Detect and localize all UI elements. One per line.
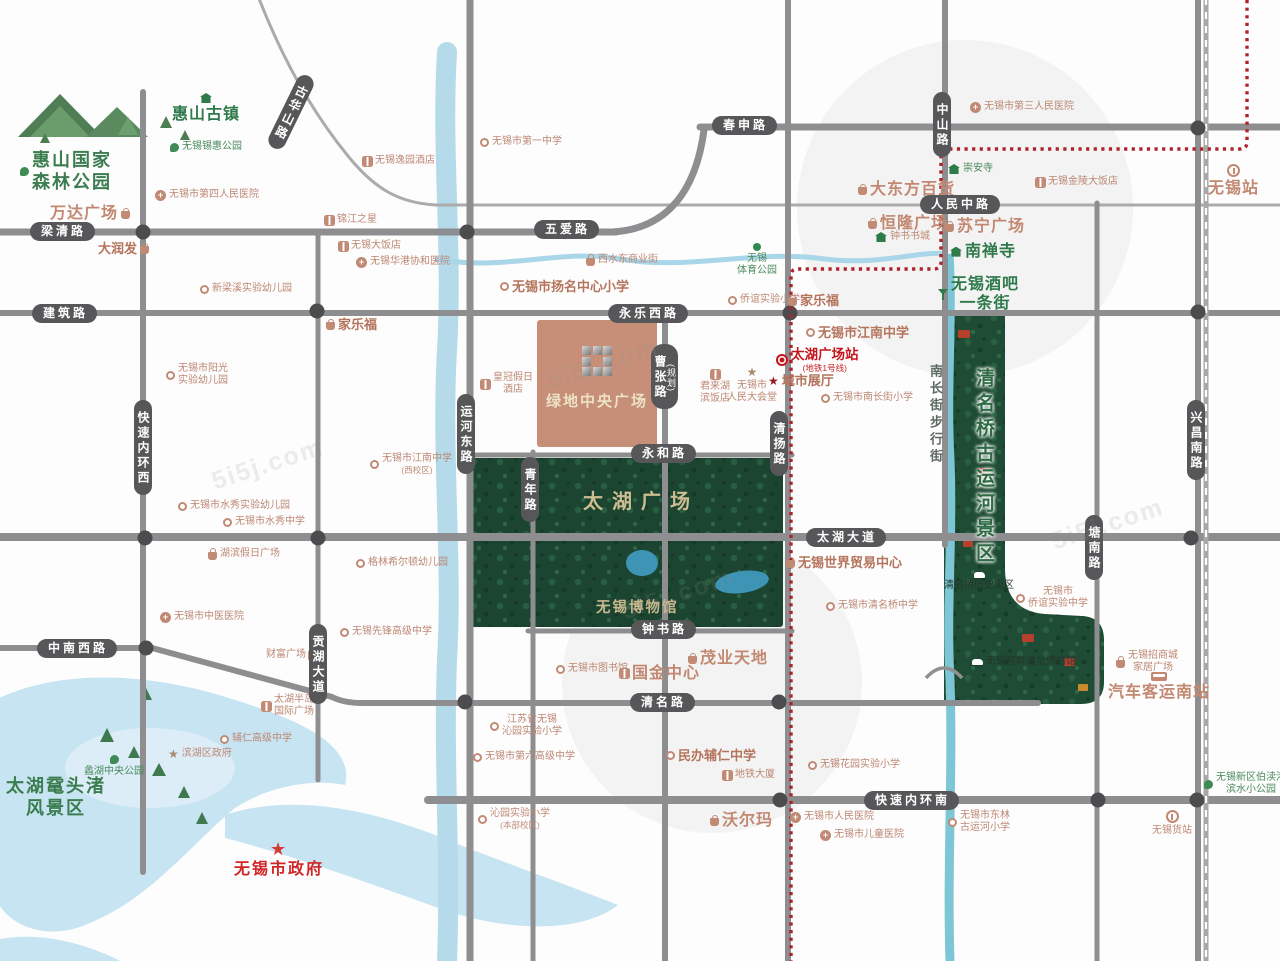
bldg-icon — [262, 702, 271, 711]
bldg-icon — [723, 771, 732, 780]
poi-xihui-park: 无锡锡惠公园 — [170, 141, 242, 153]
bldg-icon — [1036, 178, 1045, 187]
road-pill-qingming-rd: 清名路 — [630, 693, 695, 712]
road-pill-yongle-west-rd: 永乐西路 — [608, 304, 688, 323]
ring-icon — [200, 285, 209, 294]
poi-carrefour-west: 家乐福 — [326, 317, 377, 333]
road-pill-renmin-middle-rd: 人民中路 — [920, 195, 1000, 214]
bag-icon — [121, 211, 130, 219]
label-nanchang-pedestrian-street: 南长街步行街 — [926, 364, 945, 466]
poi-qingmingqiao-historic-block: 清名桥历史街区 — [944, 572, 1014, 592]
ring-icon — [370, 460, 379, 469]
poi-shuixiu-kindergarten: 无锡市水秀实验幼儿园 — [178, 500, 290, 512]
poi-wuxi-freight-station: 无锡货站 — [1152, 810, 1192, 837]
train-icon — [1227, 164, 1240, 177]
poi-yangguang-kindergarten: 无锡市阳光实验幼儿园 — [166, 363, 228, 387]
road-pill-qingyang-rd: 清扬路 — [770, 411, 788, 476]
poi-wuxi-railway-station: 无锡站 — [1208, 164, 1259, 198]
poi-huishan-ancient-town: 惠山古镇 — [172, 93, 240, 124]
ring-icon — [478, 815, 487, 824]
poi-yangming-central-primary: 无锡市扬名中心小学 — [500, 279, 629, 295]
ring-icon — [948, 818, 957, 827]
cross-icon: + — [155, 190, 166, 201]
martini-icon — [938, 289, 948, 300]
poi-crowne-plaza-hotel: 皇冠假日酒店 — [481, 372, 533, 396]
road-pill-liangqing-rd: 梁清路 — [30, 222, 95, 241]
poi-xinliangxi-kindergarten: 新梁溪实验幼儿园 — [200, 283, 292, 295]
cross-icon: + — [970, 102, 981, 113]
bag-icon — [688, 656, 697, 664]
leaf-icon — [170, 143, 179, 152]
leaf-icon — [110, 755, 119, 764]
poi-wuxi-sports-park: 无锡体育公园 — [737, 243, 777, 277]
poi-huishan-for-park: 惠山国家森林公园 — [20, 150, 112, 193]
star-icon: ★ — [747, 366, 758, 378]
bldg-icon — [363, 157, 372, 166]
poi-wuxi-bar-street: 无锡酒吧一条街 — [938, 275, 1019, 313]
temple-icon — [950, 247, 962, 257]
poi-peoples-hospital: +无锡市人民医院 — [790, 811, 874, 823]
poi-junlai-hubin-hotel: 君来湖滨饭店 — [700, 370, 730, 405]
road-pill-chunshen-rd: 春申路 — [712, 116, 777, 135]
bldg-icon — [620, 669, 629, 678]
bldg-icon — [325, 216, 334, 225]
road-pill-qingnian-rd: 青年路 — [521, 457, 539, 522]
poi-south-bus-station: 汽车客运南站 — [1108, 672, 1210, 702]
label-taihu-square: 太湖广场 — [583, 485, 699, 514]
metro-icon — [776, 354, 788, 366]
poi-qinyuan-primary-js: 江苏省无锡沁园实验小学 — [490, 714, 562, 738]
cross-icon: + — [356, 257, 367, 268]
poi-childrens-hospital: +无锡市儿童医院 — [820, 829, 904, 841]
poi-wuxi-city-gov: ★无锡市政府 — [234, 840, 324, 879]
poi-nanchan-temple: 南禅寺 — [950, 242, 1016, 261]
label-wuxi-museum: 无锡博物馆 — [596, 596, 679, 617]
poi-wanda-plaza: 万达广场 — [50, 204, 130, 223]
poi-world-trade-center: 无锡世界贸易中心 — [786, 555, 902, 571]
poi-wuxi-grand-hotel: 无锡大饭店 — [339, 240, 401, 252]
temple-icon — [875, 232, 887, 242]
road-pill-guhuashan-rd: 古华山路 — [265, 72, 316, 152]
poi-no3-peoples-hospital: +无锡市第三人民医院 — [970, 101, 1074, 113]
poi-wuxi-library: 无锡市图书馆 — [556, 663, 628, 675]
poi-no6-high-school: 无锡市第六高级中学 — [473, 751, 575, 763]
poi-ditie-tower: 地铁大厦 — [723, 769, 775, 781]
poi-no1-middle-school: 无锡市第一中学 — [480, 136, 562, 148]
poi-qiaoyi-exp-primary: 侨谊实验小学 — [728, 294, 800, 306]
poi-xishuidong-commercial-street: 西水东商业街 — [586, 254, 658, 266]
temple-icon — [948, 164, 960, 174]
poi-bodugang-waterfront-park: 无锡新区伯渎港滨水小公园 — [1204, 772, 1280, 796]
poi-no4-peoples-hospital: +无锡市第四人民医院 — [155, 189, 259, 201]
road-pill-wuai-rd: 五爱路 — [534, 220, 599, 239]
temple-icon — [200, 93, 212, 103]
road-pill-kuaisu-neihuan-south: 快速内环南 — [864, 791, 959, 810]
road-pill-gonghu-ave: 贡湖大道 — [309, 624, 327, 704]
poi-jiangnan-middle-school: 无锡市江南中学 — [806, 325, 909, 341]
ring-icon — [1016, 594, 1025, 603]
poi-furen-high-school: 辅仁高级中学 — [220, 733, 292, 745]
star-red-icon: ★ — [270, 840, 288, 858]
poi-chongan-temple: 崇安寺 — [948, 163, 993, 175]
road-pill-zhongshan-rd: 中山路 — [933, 92, 951, 157]
poi-huayuan-exp-primary: 无锡花园实验小学 — [808, 759, 900, 771]
cross-icon: + — [160, 612, 171, 623]
road-pill-zhongnan-west-rd: 中南西路 — [37, 639, 117, 658]
road-pill-taihu-ave: 太湖大道 — [806, 528, 886, 547]
bag-icon — [945, 224, 954, 232]
dot-icon — [753, 243, 761, 251]
poi-taihu-square-metro: 太湖广场站(地铁1号线) — [776, 347, 859, 373]
ring-icon — [166, 371, 175, 380]
ring-icon — [473, 753, 482, 762]
poi-walmart: 沃尔玛 — [710, 811, 773, 830]
road-pill-zhongshu-rd: 钟书路 — [631, 620, 696, 639]
bldg-icon — [711, 370, 720, 379]
map-labels-layer: 梁清路建筑路五爱路春申路永乐西路永和路钟书路清名路太湖大道快速内环南中南西路人民… — [0, 0, 1280, 961]
bag-icon — [586, 258, 595, 266]
star-icon: ★ — [168, 748, 179, 760]
poi-jinling-hotel: 无锡金陵大饭店 — [1036, 176, 1118, 188]
poi-qingmingqiao-middle: 无锡市清名桥中学 — [826, 600, 918, 612]
road-pill-yunhe-east-rd: 运河东路 — [457, 394, 475, 474]
poi-suning-plaza: 苏宁广场 — [945, 217, 1025, 236]
bag-icon — [786, 560, 795, 568]
poi-taihu-peninsula-plaza: 太湖半岛国际广场 — [262, 694, 314, 718]
ring-icon — [556, 665, 565, 674]
ring-icon — [223, 518, 232, 527]
bag-icon — [326, 322, 335, 330]
ring-icon — [806, 328, 815, 337]
ring-icon — [480, 138, 489, 147]
poi-jinjiang-inn: 锦江之星 — [325, 214, 377, 226]
poi-jiangnan-middle-west: 无锡市江南中学(西校区) — [370, 453, 452, 475]
poi-shuixiu-middle-school: 无锡市水秀中学 — [223, 516, 305, 528]
bag-icon — [208, 552, 217, 560]
bag-icon — [858, 187, 867, 195]
poi-zhaoshangcheng-home-plaza: 无锡招商城家居广场 — [1116, 650, 1178, 674]
poi-nanchangjie-primary: 无锡市南长街小学 — [821, 392, 913, 404]
road-pill-caozhang-rd: 曹张路(规划) — [651, 344, 678, 409]
poi-peoples-assembly-hall: ★无锡市人民大会堂 — [727, 366, 777, 404]
poi-city-exhibition-hall: ★城市展厅 — [768, 373, 834, 389]
ring-icon — [356, 559, 365, 568]
poi-gelin-kindergarten: 格林希尔顿幼儿园 — [356, 557, 448, 569]
bldg-icon — [481, 380, 490, 389]
cross-icon: + — [820, 830, 831, 841]
bus-icon — [1151, 672, 1167, 681]
poi-yuantouzhu-scenic: 太湖鼋头渚风景区 — [6, 776, 106, 819]
ring-icon — [490, 722, 499, 731]
ring-icon — [220, 735, 229, 744]
road-pill-xingchang-south-rd: 兴昌南路 — [1187, 400, 1205, 480]
poi-lihu-central-park: 蠡湖中央公园 — [84, 755, 144, 778]
poi-qiaoyi-exp-middle: 无锡市侨谊实验中学 — [1016, 586, 1088, 610]
train-icon — [1166, 810, 1179, 823]
poi-hubin-holiday-plaza: 湖滨假日广场 — [208, 548, 280, 560]
ring-icon — [666, 751, 675, 760]
bag-icon — [140, 246, 149, 254]
ring-icon — [808, 761, 817, 770]
bag-icon — [710, 818, 719, 826]
ring-icon — [178, 502, 187, 511]
cross-icon: + — [790, 812, 801, 823]
car-icon — [974, 572, 985, 578]
ring-icon — [500, 282, 509, 291]
poi-tcm-hospital: +无锡市中医医院 — [160, 611, 244, 623]
bag-icon — [1116, 660, 1125, 668]
car-icon — [972, 659, 983, 665]
poi-zhongshu-bookmall: 钟书书城 — [875, 231, 930, 243]
label-qingmingqiao-scenic-area: 清名桥古运河景区 — [970, 368, 997, 568]
poi-rt-mart: 大润发 — [98, 241, 149, 257]
leaf-icon — [20, 167, 29, 176]
poi-yiyuan-hotel: 无锡逸园酒店 — [363, 155, 435, 167]
poi-xianfeng-high-school: 无锡先锋高级中学 — [340, 626, 432, 638]
road-pill-yonghe-rd: 永和路 — [631, 444, 696, 463]
road-pill-jianzhu-rd: 建筑路 — [32, 304, 97, 323]
ring-icon — [826, 602, 835, 611]
poi-huagang-xiehe-hospital: +无锡华港协和医院 — [356, 256, 450, 268]
poi-maoye-tiandi: 茂业天地 — [688, 649, 768, 668]
poi-yaoqun-ruins-museum: 无锡窑群遗址博物馆 — [972, 656, 1076, 668]
road-pill-kuaisu-neihuan-west: 快速内环西 — [134, 400, 152, 495]
poi-donglin-guyunhe-primary: 无锡市东林古运河小学 — [948, 810, 1010, 834]
ring-icon — [340, 628, 349, 637]
poi-minban-furen-middle: 民办辅仁中学 — [666, 748, 756, 764]
bag-icon — [868, 221, 877, 229]
poi-qinyuan-primary: 沁园实验小学(本部校区) — [478, 808, 550, 830]
ring-icon — [821, 394, 830, 403]
ring-icon — [728, 296, 737, 305]
leaf-icon — [1204, 780, 1213, 789]
road-pill-tangnan-rd: 塘南路 — [1085, 515, 1103, 580]
poi-binhu-district-gov: ★滨湖区政府 — [168, 748, 232, 760]
location-map[interactable]: 绿地中央广场 梁清路建筑路五爱路春申路永乐西路永和路钟书路清名路太湖大道快速内环… — [0, 0, 1280, 961]
bldg-icon — [339, 242, 348, 251]
